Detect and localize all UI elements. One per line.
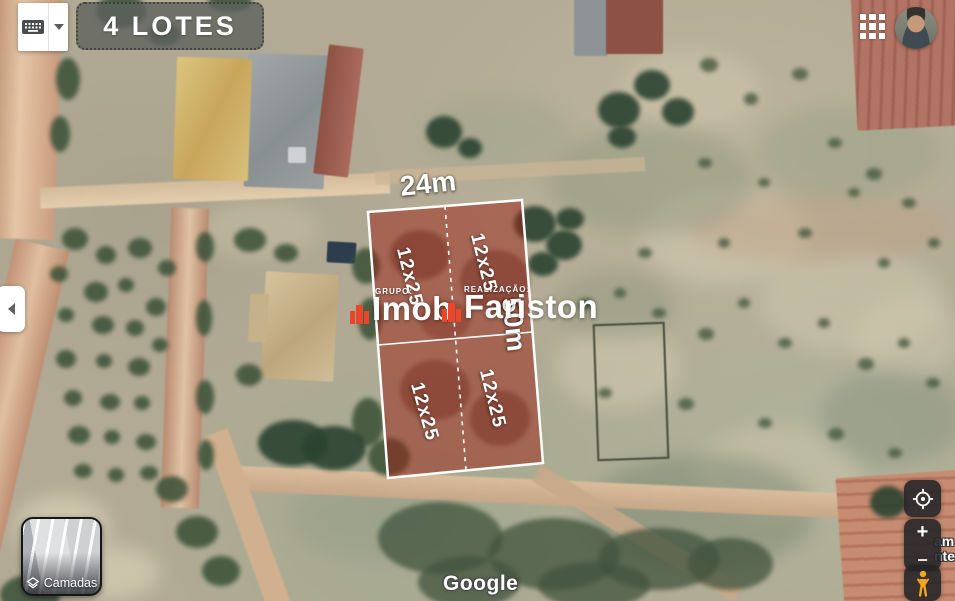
zoom-control[interactable]: + − xyxy=(904,519,941,571)
user-avatar[interactable] xyxy=(895,7,937,49)
watermark-group-name: Imob xyxy=(372,291,453,327)
keyboard-icon[interactable] xyxy=(18,3,49,51)
layers-button[interactable]: Camadas xyxy=(21,517,102,596)
layers-label: Camadas xyxy=(44,576,98,590)
app-window: 24m 50m 12x25 12x25 12x25 12x25 GRUPO: I… xyxy=(0,0,955,601)
dropdown-toggle[interactable] xyxy=(49,3,68,51)
map-title-badge[interactable]: 4 LOTES xyxy=(76,2,264,50)
satellite-map[interactable]: 24m 50m 12x25 12x25 12x25 12x25 GRUPO: I… xyxy=(0,0,955,601)
fariston-logo-icon xyxy=(442,300,462,326)
plot-width-label: 24m xyxy=(398,165,457,203)
chevron-left-icon xyxy=(8,303,15,315)
keyboard-shortcut-button[interactable] xyxy=(18,3,68,51)
apps-grid-icon[interactable] xyxy=(860,14,885,39)
panel-collapse-button[interactable] xyxy=(0,286,25,332)
caret-down-icon xyxy=(54,24,64,30)
watermark-realization-name: Fariston xyxy=(464,289,598,325)
zoom-in-button[interactable]: + xyxy=(917,522,929,542)
layers-icon xyxy=(26,576,40,590)
pegman-icon xyxy=(915,570,931,597)
pegman-button[interactable] xyxy=(904,565,941,601)
my-location-icon xyxy=(912,488,934,510)
google-attribution[interactable]: Google xyxy=(443,572,518,596)
imob-logo-icon xyxy=(350,302,370,328)
my-location-button[interactable] xyxy=(904,480,941,517)
